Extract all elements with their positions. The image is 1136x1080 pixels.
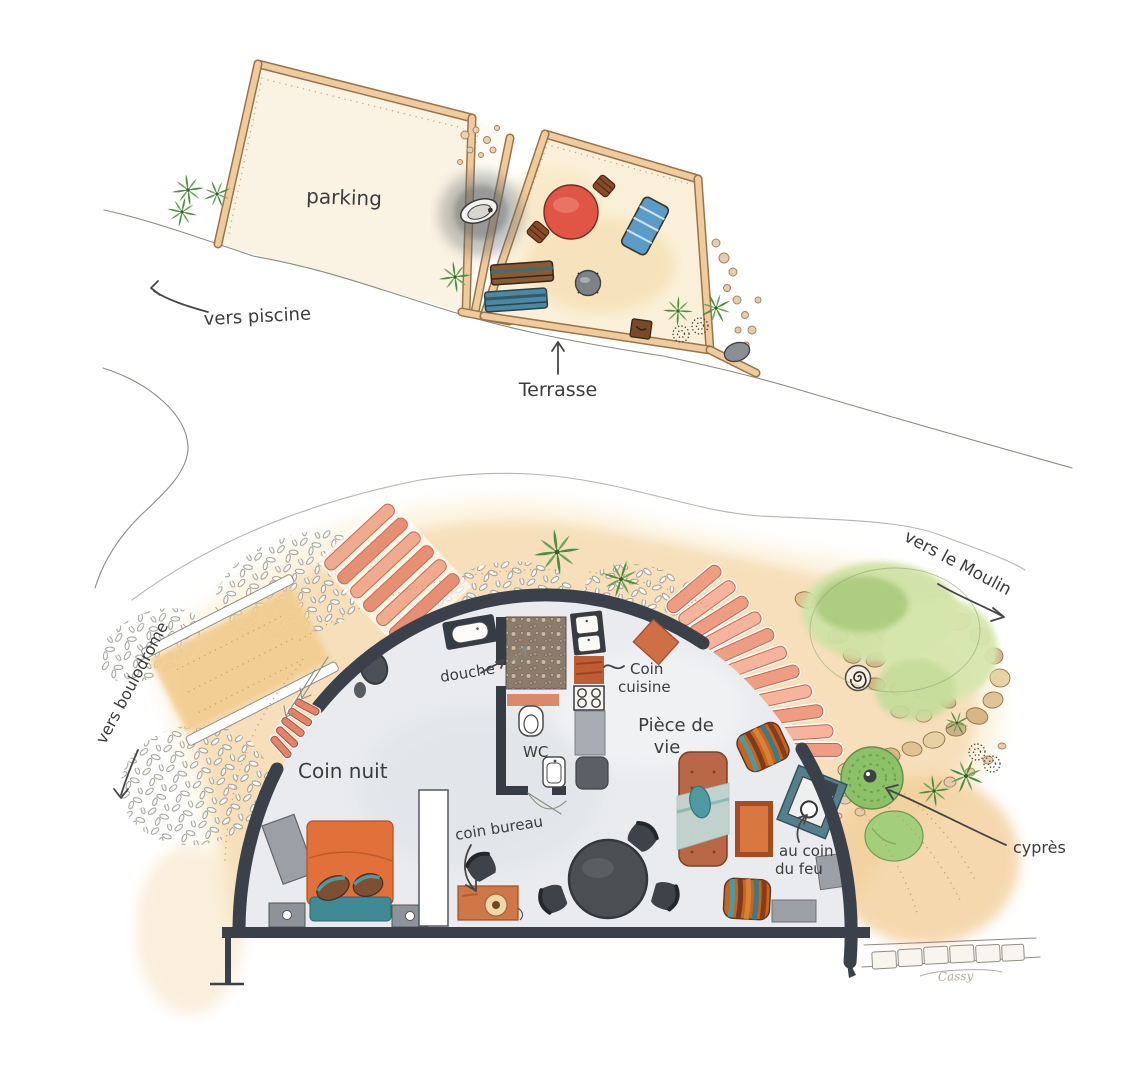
wc-label: WC xyxy=(523,743,548,761)
au-coin-du-feu-label-1: au coin xyxy=(779,842,834,860)
kitchen-counter xyxy=(574,656,604,684)
signature-text: Cassy xyxy=(938,969,974,984)
rug xyxy=(735,801,773,857)
palm-plant xyxy=(172,174,204,206)
coin-nuit-label: Coin nuit xyxy=(298,759,388,783)
piece-de-vie-label-1: Pièce de xyxy=(638,715,714,736)
stone-path xyxy=(862,938,1040,969)
pillar xyxy=(419,790,448,926)
coin-cuisine-label-2: cuisine xyxy=(618,678,671,696)
vers-piscine-label: vers piscine xyxy=(203,303,311,330)
parking-label: parking xyxy=(306,184,382,211)
wall-stub xyxy=(225,938,231,984)
bed-blanket xyxy=(310,897,391,921)
striped-armchair xyxy=(723,878,771,920)
low-table xyxy=(630,319,652,340)
bench xyxy=(490,261,553,285)
cypress-tree xyxy=(841,747,903,809)
toilet xyxy=(519,706,543,736)
fridge xyxy=(576,757,608,789)
wall xyxy=(496,786,528,795)
coin-cuisine-label-1: Coin xyxy=(630,660,663,678)
bush xyxy=(865,811,923,861)
barbecue-area xyxy=(439,172,523,256)
illustration-canvas: vers piscine parking Terrasse xyxy=(0,0,1136,1080)
wc-sink xyxy=(543,757,565,787)
gray-slab xyxy=(772,900,816,922)
side-table xyxy=(576,271,601,296)
dining-table xyxy=(569,840,647,918)
wc-threshold xyxy=(507,694,559,706)
bench xyxy=(484,288,547,312)
cypres-label: cyprès xyxy=(1013,838,1066,857)
wall xyxy=(496,686,506,794)
spiral-stone xyxy=(846,666,871,691)
base-wall xyxy=(222,927,870,938)
terrasse-label: Terrasse xyxy=(518,379,598,401)
rock xyxy=(354,682,366,698)
wall xyxy=(496,617,506,665)
watercolor-plan: vers piscine parking Terrasse xyxy=(0,0,1136,1080)
shower-floor xyxy=(506,617,566,689)
terrain-line-left xyxy=(95,368,188,588)
artist-signature: Cassy xyxy=(920,969,1002,984)
pebbles-terrasse-east xyxy=(712,239,761,348)
kitchen-sinks xyxy=(570,610,606,655)
cooktop xyxy=(574,686,604,710)
counter xyxy=(575,711,605,755)
au-coin-du-feu-label-2: du feu xyxy=(775,860,823,878)
piece-de-vie-label-2: vie xyxy=(654,737,681,758)
